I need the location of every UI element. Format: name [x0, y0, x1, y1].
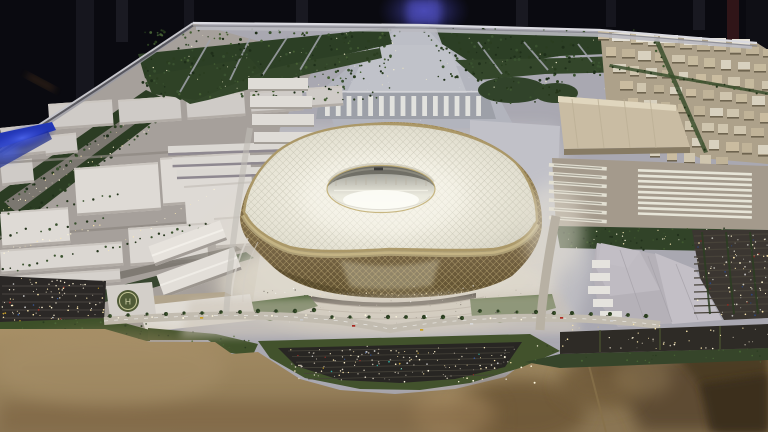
svg-text:H: H: [125, 297, 131, 307]
